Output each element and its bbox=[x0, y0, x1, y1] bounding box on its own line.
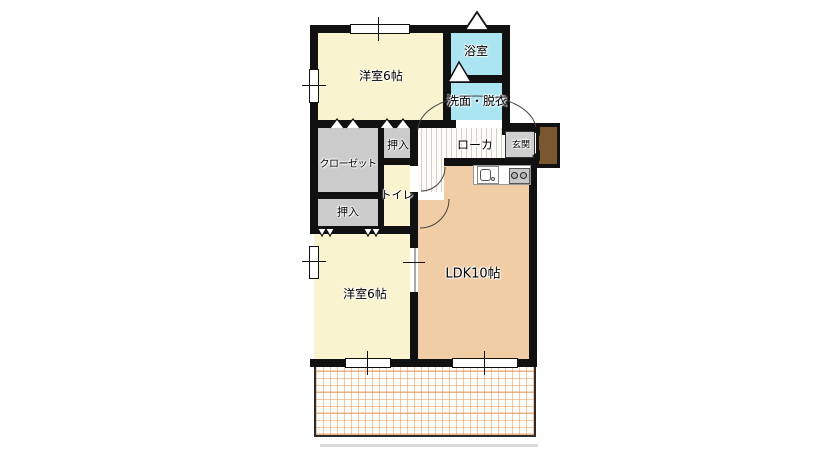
sliding-door-panel bbox=[414, 248, 416, 292]
room-label-bath: 浴室 bbox=[464, 45, 488, 57]
wall-closet-oshiire-divider bbox=[310, 192, 384, 199]
corridor-ldk-door-opening bbox=[418, 192, 444, 200]
wall-closet-vertical bbox=[378, 126, 384, 234]
room-label-oshiire-lower: 押入 bbox=[337, 207, 359, 218]
balcony-shadow bbox=[320, 444, 538, 447]
wall-mid-band bbox=[310, 120, 458, 128]
floor-plan-canvas: 洋室6帖 浴室 洗面・脱衣 クローゼット 押入 トイレ 押入 ローカ 玄関 LD… bbox=[0, 0, 824, 454]
wall-mid-bottom bbox=[310, 226, 418, 234]
wall-top bbox=[310, 25, 510, 33]
kitchen-sink-tap bbox=[491, 177, 495, 181]
window-top-tick bbox=[378, 17, 379, 41]
sliding-door-tick bbox=[403, 262, 425, 263]
window-bottom-left bbox=[345, 358, 391, 368]
stove-burner-icon bbox=[511, 172, 518, 179]
entry-door bbox=[539, 127, 557, 164]
corridor-floor-strip bbox=[416, 126, 446, 200]
room-label-entrance: 玄関 bbox=[512, 142, 530, 151]
kitchen-sink-bowl bbox=[480, 169, 491, 181]
window-left-lower-tick bbox=[302, 261, 326, 262]
room-label-western-bottom: 洋室6帖 bbox=[343, 288, 387, 300]
room-label-western-top: 洋室6帖 bbox=[359, 70, 403, 82]
room-label-corridor: ローカ bbox=[457, 139, 493, 151]
window-bottom-left-tick bbox=[367, 351, 368, 375]
wall-bath-washroom-divider bbox=[443, 75, 510, 83]
window-top bbox=[350, 24, 410, 34]
wall-right-lower bbox=[529, 158, 537, 367]
room-label-closet: クローゼット bbox=[320, 160, 377, 170]
wall-left-upper bbox=[310, 25, 318, 234]
room-label-oshiire-upper: 押入 bbox=[387, 140, 409, 151]
window-left-upper-tick bbox=[302, 85, 326, 86]
balcony bbox=[314, 367, 536, 437]
washroom-door-opening bbox=[456, 120, 502, 128]
window-left-lower bbox=[309, 246, 319, 279]
window-bottom-right bbox=[452, 358, 518, 368]
room-label-toilet: トイレ bbox=[381, 190, 414, 201]
window-bottom-right-tick bbox=[484, 351, 485, 375]
window-left-upper bbox=[309, 69, 319, 103]
room-label-ldk: LDK10帖 bbox=[445, 268, 500, 281]
wall-right-upper bbox=[502, 25, 510, 135]
room-label-washroom: 洗面・脱衣 bbox=[447, 95, 507, 107]
stove-burner-icon bbox=[520, 172, 527, 179]
